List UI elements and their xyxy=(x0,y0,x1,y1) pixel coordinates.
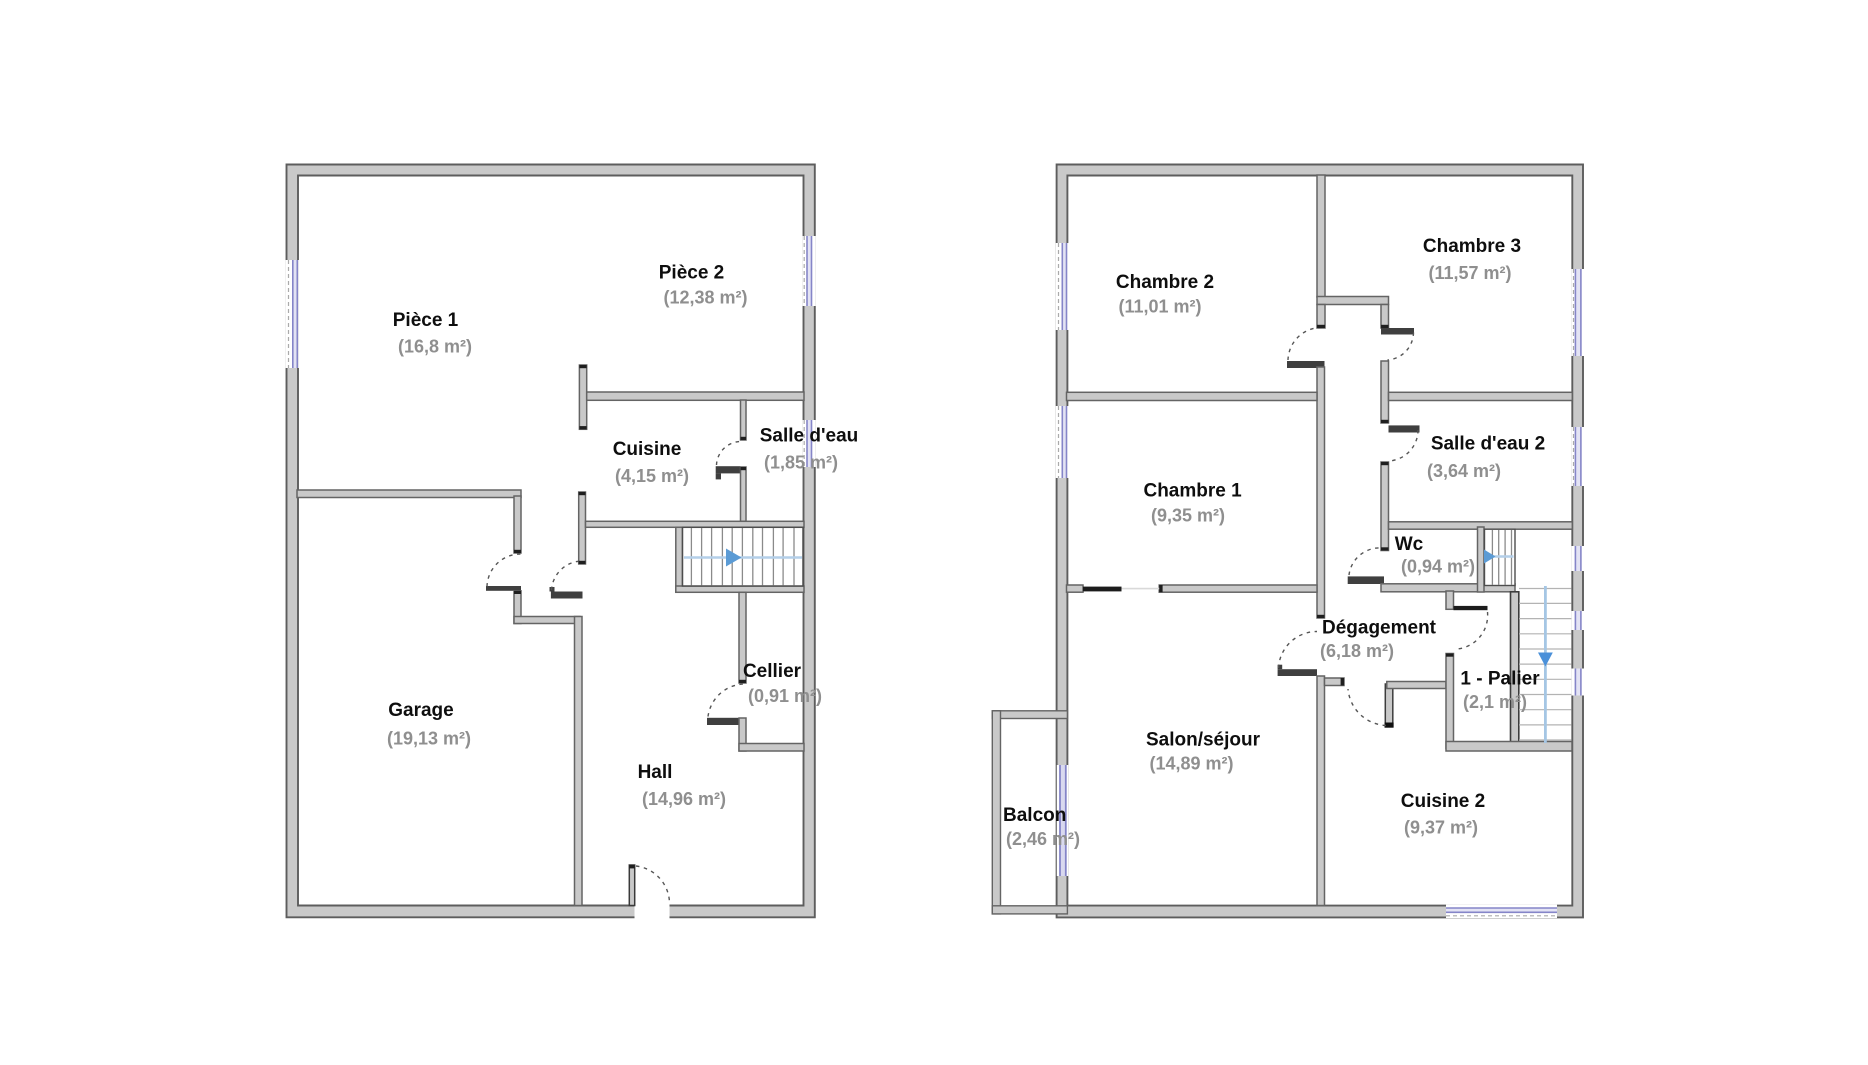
svg-text:Salon/séjour: Salon/séjour xyxy=(1146,730,1261,751)
svg-text:Pièce 2: Pièce 2 xyxy=(659,263,725,284)
svg-text:(3,64 m²): (3,64 m²) xyxy=(1427,461,1501,481)
svg-text:Salle d'eau: Salle d'eau xyxy=(760,426,859,447)
svg-text:Pièce 1: Pièce 1 xyxy=(393,310,459,331)
svg-text:Garage: Garage xyxy=(388,700,453,721)
svg-text:(0,94 m²): (0,94 m²) xyxy=(1401,557,1475,577)
svg-text:(9,37 m²): (9,37 m²) xyxy=(1404,818,1478,838)
svg-text:(16,8 m²): (16,8 m²) xyxy=(398,337,472,357)
svg-text:Chambre 3: Chambre 3 xyxy=(1423,236,1521,257)
svg-text:(4,15 m²): (4,15 m²) xyxy=(615,466,689,486)
svg-text:(1,85 m²): (1,85 m²) xyxy=(764,453,838,473)
svg-text:Chambre 1: Chambre 1 xyxy=(1143,481,1242,502)
svg-text:Cuisine: Cuisine xyxy=(613,439,682,460)
svg-text:1 - Palier: 1 - Palier xyxy=(1460,669,1540,690)
svg-text:Chambre 2: Chambre 2 xyxy=(1116,272,1214,293)
svg-text:Hall: Hall xyxy=(638,762,673,783)
svg-text:(11,57 m²): (11,57 m²) xyxy=(1428,263,1511,283)
svg-text:(19,13 m²): (19,13 m²) xyxy=(387,729,471,749)
svg-text:(11,01 m²): (11,01 m²) xyxy=(1118,297,1201,317)
svg-text:(6,18 m²): (6,18 m²) xyxy=(1320,641,1394,661)
svg-text:Dégagement: Dégagement xyxy=(1322,618,1437,639)
svg-text:Balcon: Balcon xyxy=(1003,805,1066,826)
svg-text:(0,91 m²): (0,91 m²) xyxy=(748,686,822,706)
svg-text:(12,38 m²): (12,38 m²) xyxy=(663,288,747,308)
svg-text:Cuisine 2: Cuisine 2 xyxy=(1401,791,1485,812)
svg-text:(14,96 m²): (14,96 m²) xyxy=(642,789,726,809)
svg-text:Wc: Wc xyxy=(1395,534,1424,555)
svg-text:Salle d'eau 2: Salle d'eau 2 xyxy=(1431,434,1545,455)
svg-text:(2,1 m²): (2,1 m²) xyxy=(1463,692,1527,712)
svg-text:(9,35 m²): (9,35 m²) xyxy=(1151,506,1225,526)
svg-text:Cellier: Cellier xyxy=(743,661,802,682)
svg-text:(14,89 m²): (14,89 m²) xyxy=(1149,754,1233,774)
svg-text:(2,46 m²): (2,46 m²) xyxy=(1006,829,1080,849)
